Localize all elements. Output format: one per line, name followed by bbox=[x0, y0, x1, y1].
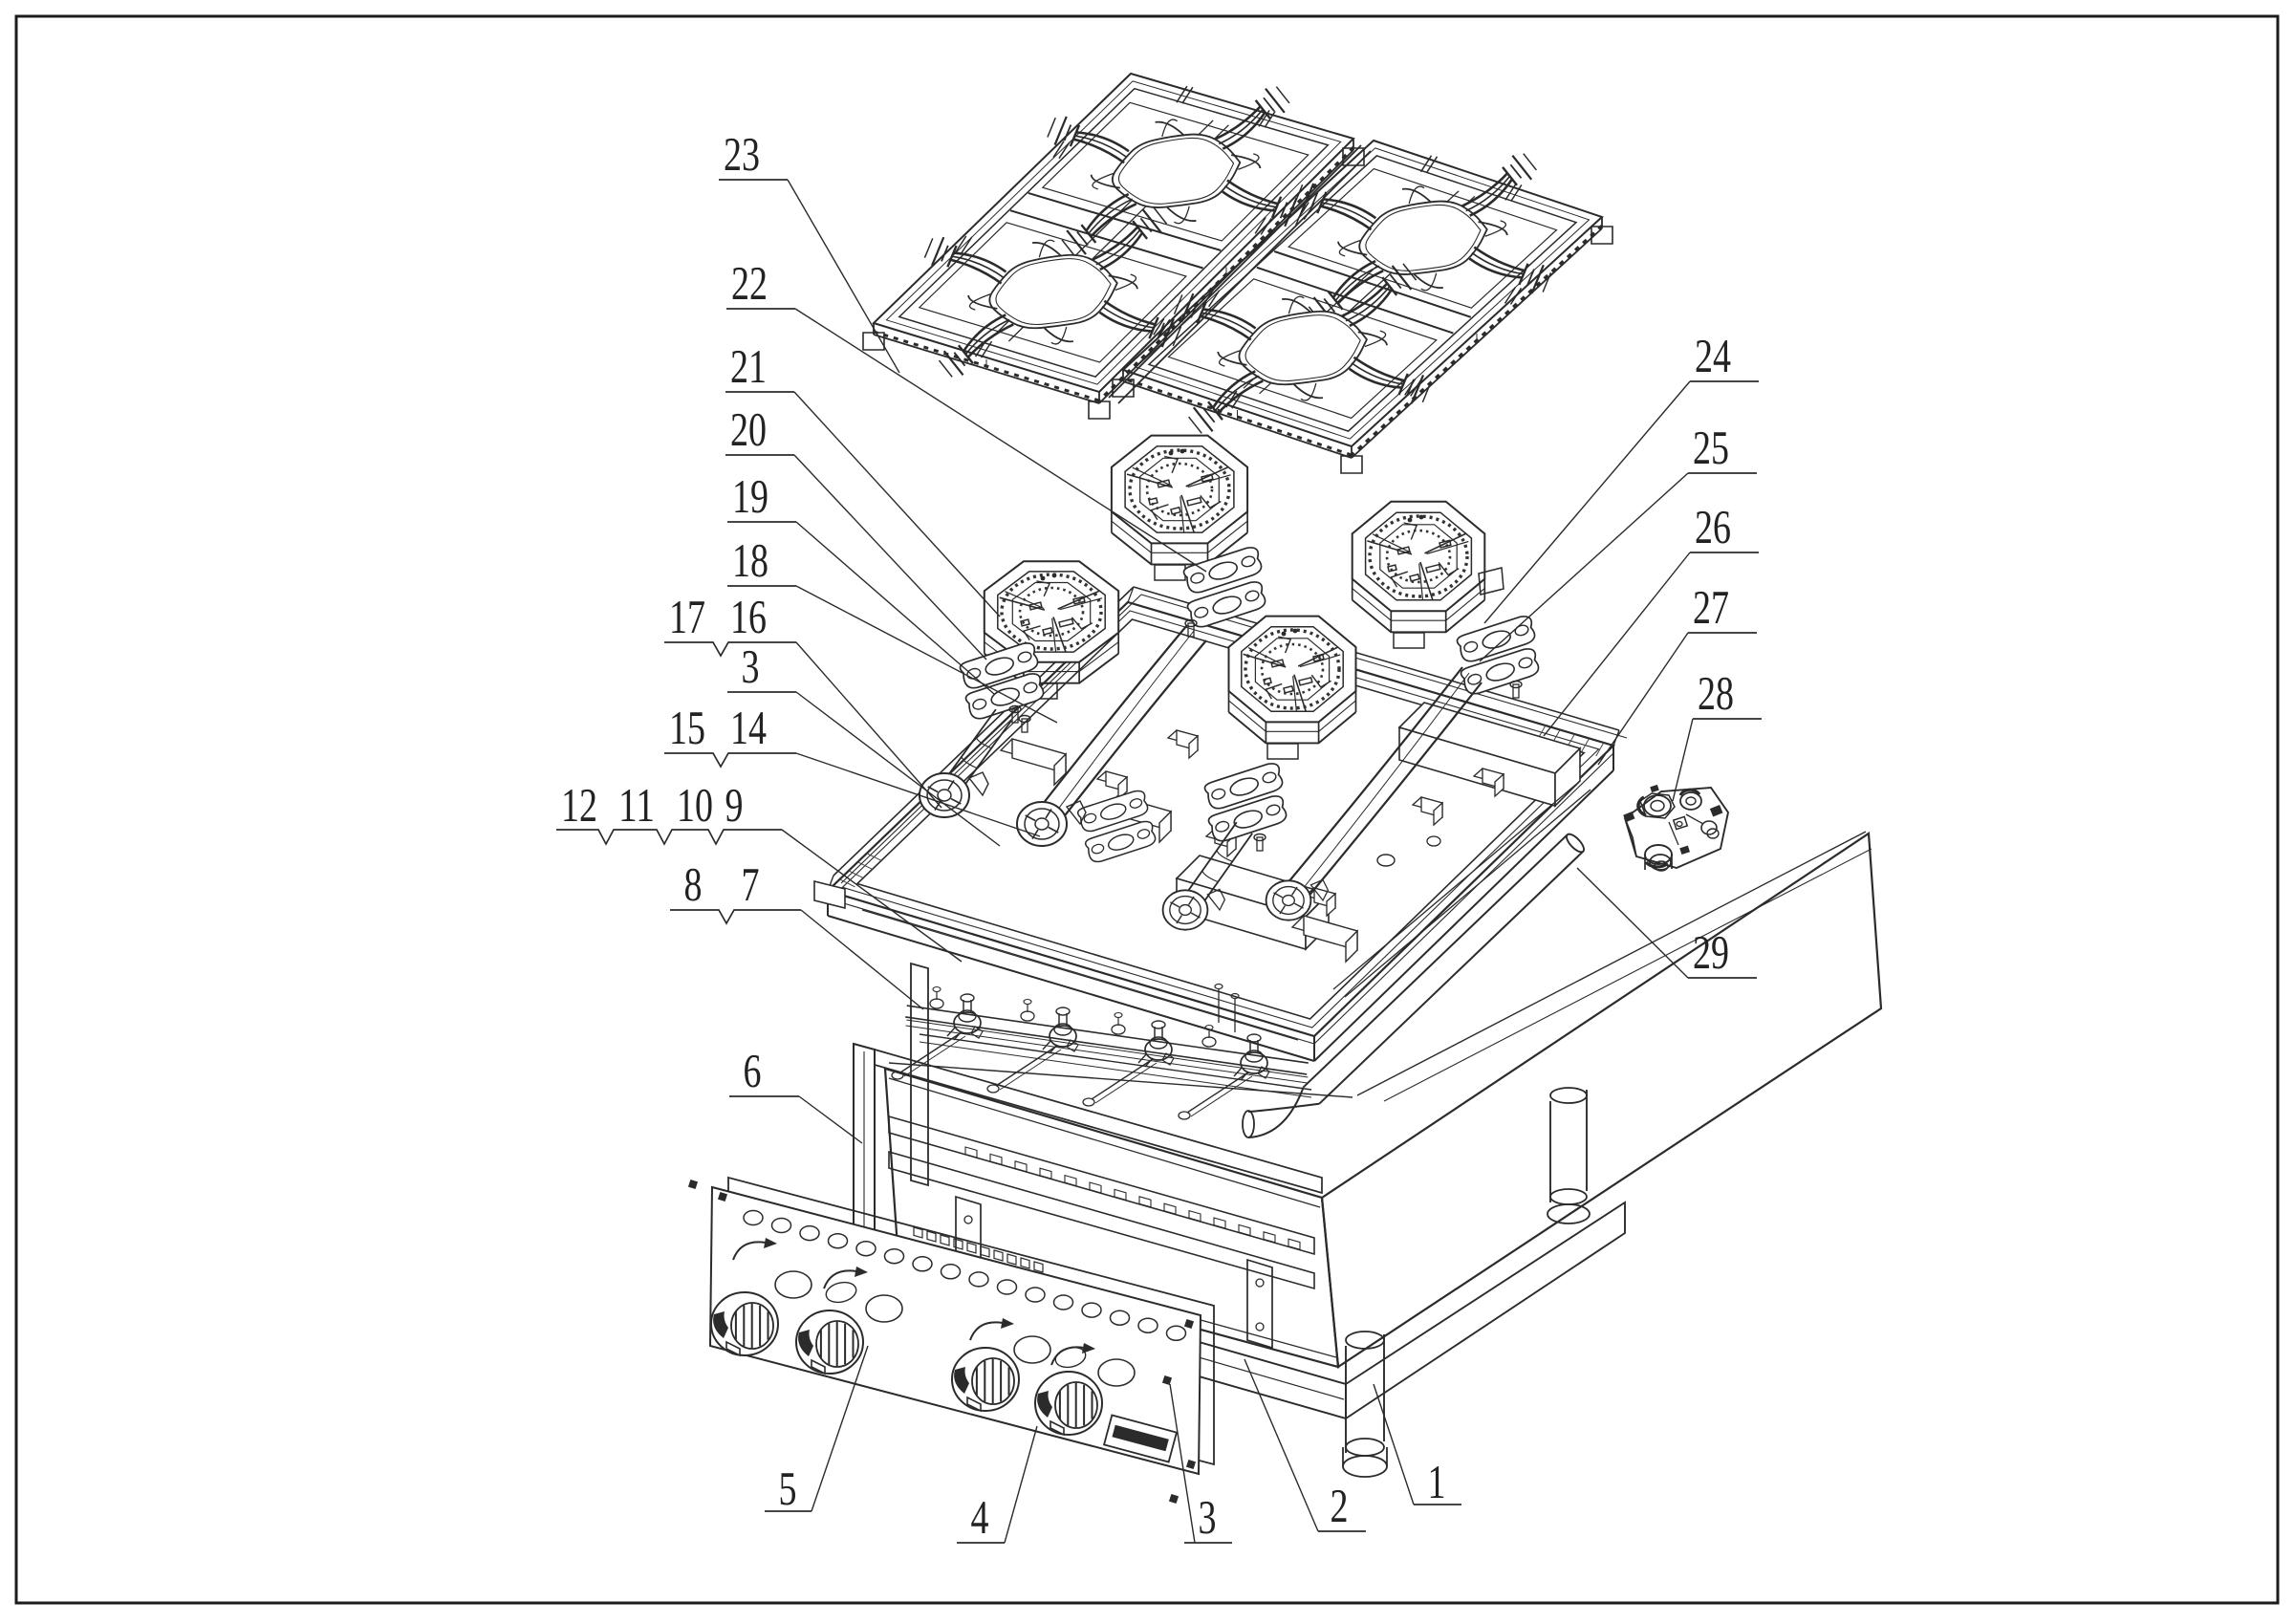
svg-text:15: 15 bbox=[669, 701, 705, 754]
svg-text:23: 23 bbox=[724, 127, 760, 181]
svg-text:9: 9 bbox=[725, 778, 744, 832]
svg-text:20: 20 bbox=[730, 402, 767, 456]
svg-text:16: 16 bbox=[730, 590, 767, 643]
svg-text:2: 2 bbox=[1331, 1479, 1349, 1532]
svg-text:12: 12 bbox=[561, 778, 597, 832]
svg-text:19: 19 bbox=[732, 469, 768, 523]
svg-text:21: 21 bbox=[730, 339, 767, 393]
svg-text:27: 27 bbox=[1693, 580, 1729, 634]
svg-text:5: 5 bbox=[779, 1462, 797, 1515]
svg-text:22: 22 bbox=[731, 256, 768, 310]
svg-text:14: 14 bbox=[730, 701, 767, 754]
svg-text:18: 18 bbox=[732, 533, 768, 587]
svg-text:8: 8 bbox=[684, 857, 703, 911]
svg-text:24: 24 bbox=[1695, 329, 1731, 382]
svg-text:25: 25 bbox=[1693, 421, 1729, 474]
svg-text:10: 10 bbox=[677, 778, 713, 832]
svg-text:3: 3 bbox=[742, 639, 760, 693]
svg-text:29: 29 bbox=[1693, 925, 1729, 979]
svg-text:7: 7 bbox=[742, 857, 760, 911]
svg-text:11: 11 bbox=[618, 778, 655, 832]
svg-text:26: 26 bbox=[1695, 500, 1731, 553]
svg-text:6: 6 bbox=[744, 1044, 762, 1097]
svg-text:3: 3 bbox=[1199, 1490, 1217, 1544]
svg-text:28: 28 bbox=[1698, 666, 1734, 720]
svg-text:1: 1 bbox=[1428, 1455, 1446, 1508]
svg-text:17: 17 bbox=[669, 590, 705, 643]
svg-text:4: 4 bbox=[971, 1490, 989, 1544]
